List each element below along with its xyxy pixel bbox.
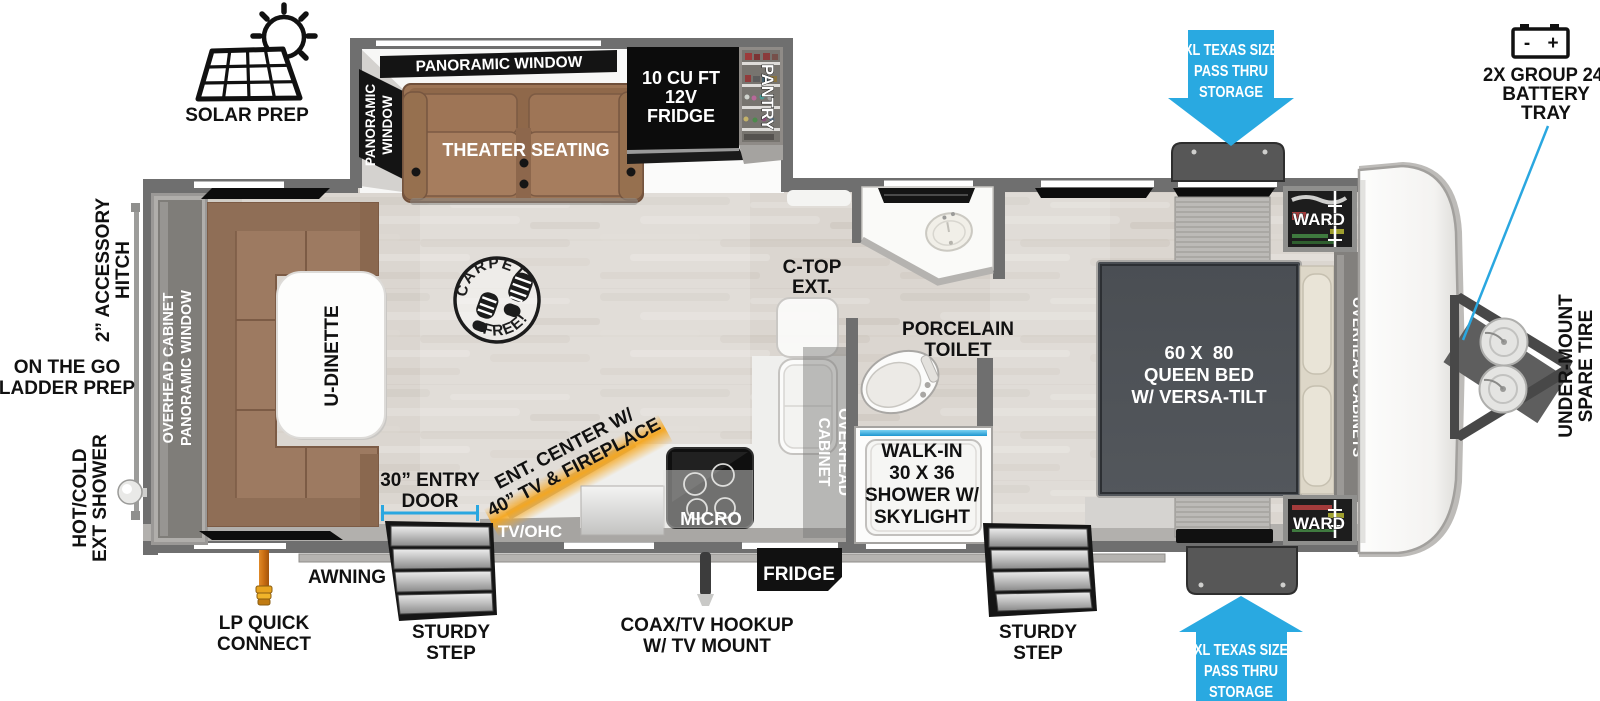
svg-text:FRIDGE: FRIDGE: [763, 564, 835, 585]
svg-text:-: -: [1524, 33, 1530, 54]
svg-text:HITCH: HITCH: [113, 241, 134, 299]
svg-text:STEP: STEP: [426, 643, 476, 664]
svg-text:10 CU FT: 10 CU FT: [642, 68, 720, 88]
svg-text:PORCELAIN: PORCELAIN: [902, 319, 1014, 340]
svg-text:SOLAR PREP: SOLAR PREP: [185, 105, 309, 126]
svg-text:MICRO: MICRO: [680, 508, 742, 529]
svg-text:+: +: [1547, 33, 1558, 54]
svg-text:12V: 12V: [665, 87, 697, 107]
svg-text:XL TEXAS SIZE: XL TEXAS SIZE: [1194, 642, 1288, 659]
svg-text:STURDY: STURDY: [999, 622, 1077, 643]
svg-text:SKYLIGHT: SKYLIGHT: [874, 507, 970, 528]
svg-text:WARD: WARD: [1293, 514, 1345, 533]
svg-text:STORAGE: STORAGE: [1209, 684, 1273, 701]
svg-text:WARD: WARD: [1293, 210, 1345, 229]
svg-text:30 X 36: 30 X 36: [889, 463, 955, 484]
svg-text:BATTERY: BATTERY: [1502, 84, 1590, 105]
svg-text:U-DINETTE: U-DINETTE: [322, 305, 343, 406]
svg-text:2X GROUP 24: 2X GROUP 24: [1483, 65, 1600, 86]
svg-text:PASS THRU: PASS THRU: [1194, 63, 1268, 80]
svg-text:W/ TV MOUNT: W/ TV MOUNT: [643, 636, 771, 657]
svg-text:WINDOW: WINDOW: [380, 95, 395, 154]
svg-text:PASS THRU: PASS THRU: [1204, 663, 1278, 680]
svg-text:HOT/COLD: HOT/COLD: [70, 448, 91, 547]
svg-text:LP QUICK: LP QUICK: [219, 613, 310, 634]
svg-text:ON THE GO: ON THE GO: [14, 357, 121, 378]
svg-text:FRIDGE: FRIDGE: [647, 106, 715, 126]
svg-text:CABINET: CABINET: [815, 418, 832, 487]
svg-text:WALK-IN: WALK-IN: [881, 441, 962, 462]
svg-text:PANORAMIC WINDOW: PANORAMIC WINDOW: [179, 290, 195, 446]
svg-text:EXT SHOWER: EXT SHOWER: [90, 434, 111, 562]
svg-text:STEP: STEP: [1013, 643, 1063, 664]
svg-text:UNDER-MOUNT: UNDER-MOUNT: [1556, 294, 1577, 438]
svg-text:30” ENTRY: 30” ENTRY: [380, 470, 480, 491]
svg-text:PANTRY: PANTRY: [758, 64, 776, 130]
svg-text:W/ VERSA-TILT: W/ VERSA-TILT: [1131, 386, 1267, 407]
svg-text:XL TEXAS SIZE: XL TEXAS SIZE: [1184, 42, 1278, 59]
svg-text:TOILET: TOILET: [924, 340, 992, 361]
svg-text:60 X 80: 60 X 80: [1165, 342, 1234, 363]
svg-text:SHOWER W/: SHOWER W/: [865, 485, 980, 506]
svg-text:STURDY: STURDY: [412, 622, 490, 643]
svg-text:AWNING: AWNING: [308, 567, 386, 588]
svg-text:DOOR: DOOR: [402, 491, 459, 512]
svg-text:PANORAMIC: PANORAMIC: [363, 84, 378, 166]
svg-text:TV/OHC: TV/OHC: [498, 522, 562, 541]
svg-text:2” ACCESSORY: 2” ACCESSORY: [93, 198, 114, 343]
svg-text:COAX/TV HOOKUP: COAX/TV HOOKUP: [620, 615, 793, 636]
svg-text:LADDER PREP: LADDER PREP: [0, 378, 135, 399]
svg-text:THEATER SEATING: THEATER SEATING: [442, 140, 609, 160]
svg-text:C-TOP: C-TOP: [783, 257, 842, 278]
svg-text:EXT.: EXT.: [792, 277, 832, 298]
svg-text:OVERHEAD CABINET: OVERHEAD CABINET: [161, 293, 177, 444]
svg-text:CONNECT: CONNECT: [217, 634, 311, 655]
svg-text:TRAY: TRAY: [1521, 103, 1571, 124]
svg-text:QUEEN BED: QUEEN BED: [1144, 364, 1254, 385]
svg-text:SPARE TIRE: SPARE TIRE: [1576, 310, 1597, 423]
svg-text:STORAGE: STORAGE: [1199, 84, 1263, 101]
